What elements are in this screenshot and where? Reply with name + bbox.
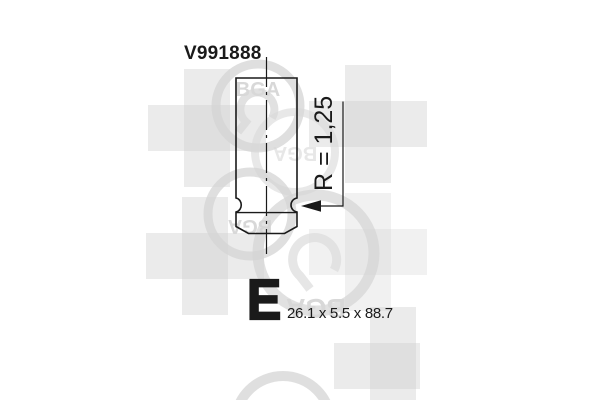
- radius-dimension-label: R = 1,25: [310, 101, 338, 191]
- valve-type-letter: E: [247, 272, 281, 329]
- leader-arrowhead-icon: [301, 200, 321, 211]
- valve-technical-drawing: BGA BGA BGA BGA V991888 R = 1,25: [0, 0, 600, 400]
- dimensions-label: 26.1 x 5.5 x 88.7: [287, 305, 393, 322]
- valve-outline-drawing: [0, 0, 600, 400]
- part-number-label: V991888: [184, 43, 261, 65]
